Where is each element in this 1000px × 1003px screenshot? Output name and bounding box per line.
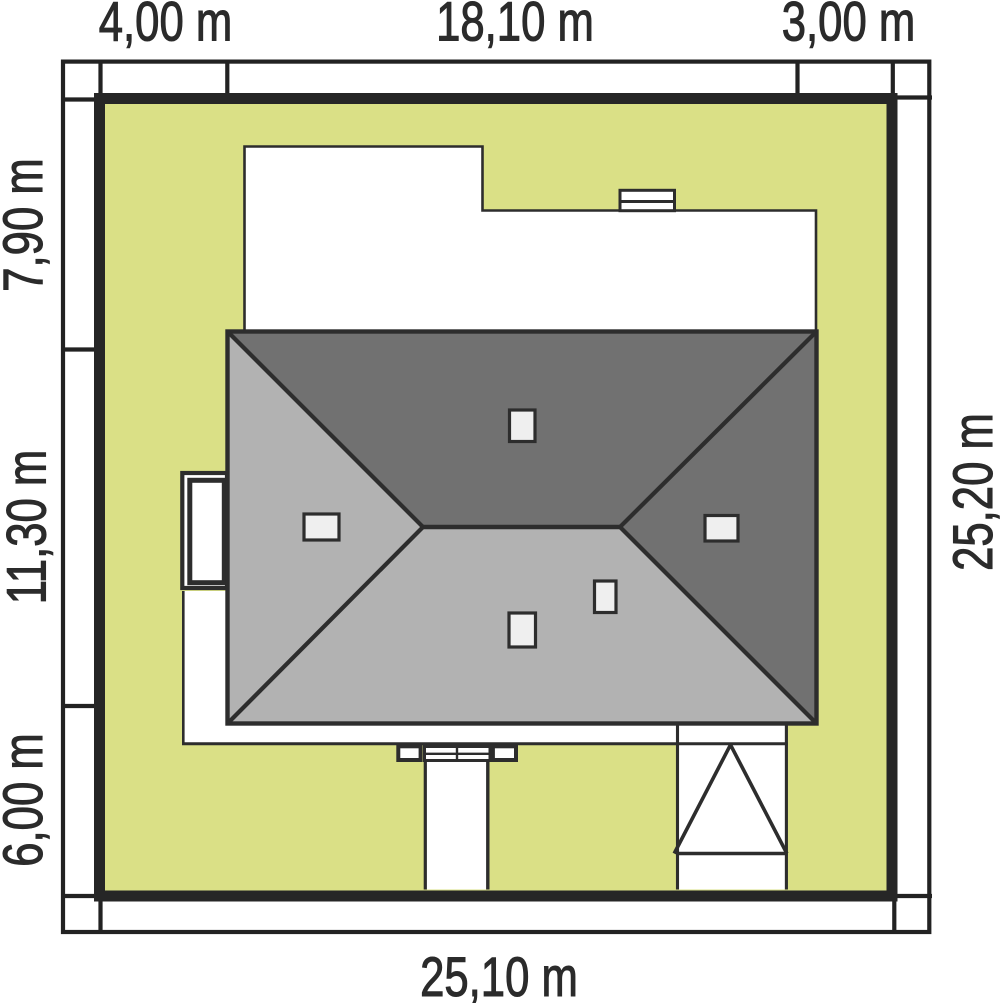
svg-text:3,00 m: 3,00 m (782, 0, 915, 53)
svg-text:25,10 m: 25,10 m (420, 946, 578, 1003)
svg-text:11,30 m: 11,30 m (0, 450, 58, 605)
svg-text:7,90 m: 7,90 m (0, 158, 54, 291)
svg-text:6,00 m: 6,00 m (0, 733, 54, 866)
svg-text:25,20 m: 25,20 m (942, 413, 1000, 571)
svg-text:18,10 m: 18,10 m (436, 0, 594, 53)
svg-text:4,00 m: 4,00 m (99, 0, 232, 53)
